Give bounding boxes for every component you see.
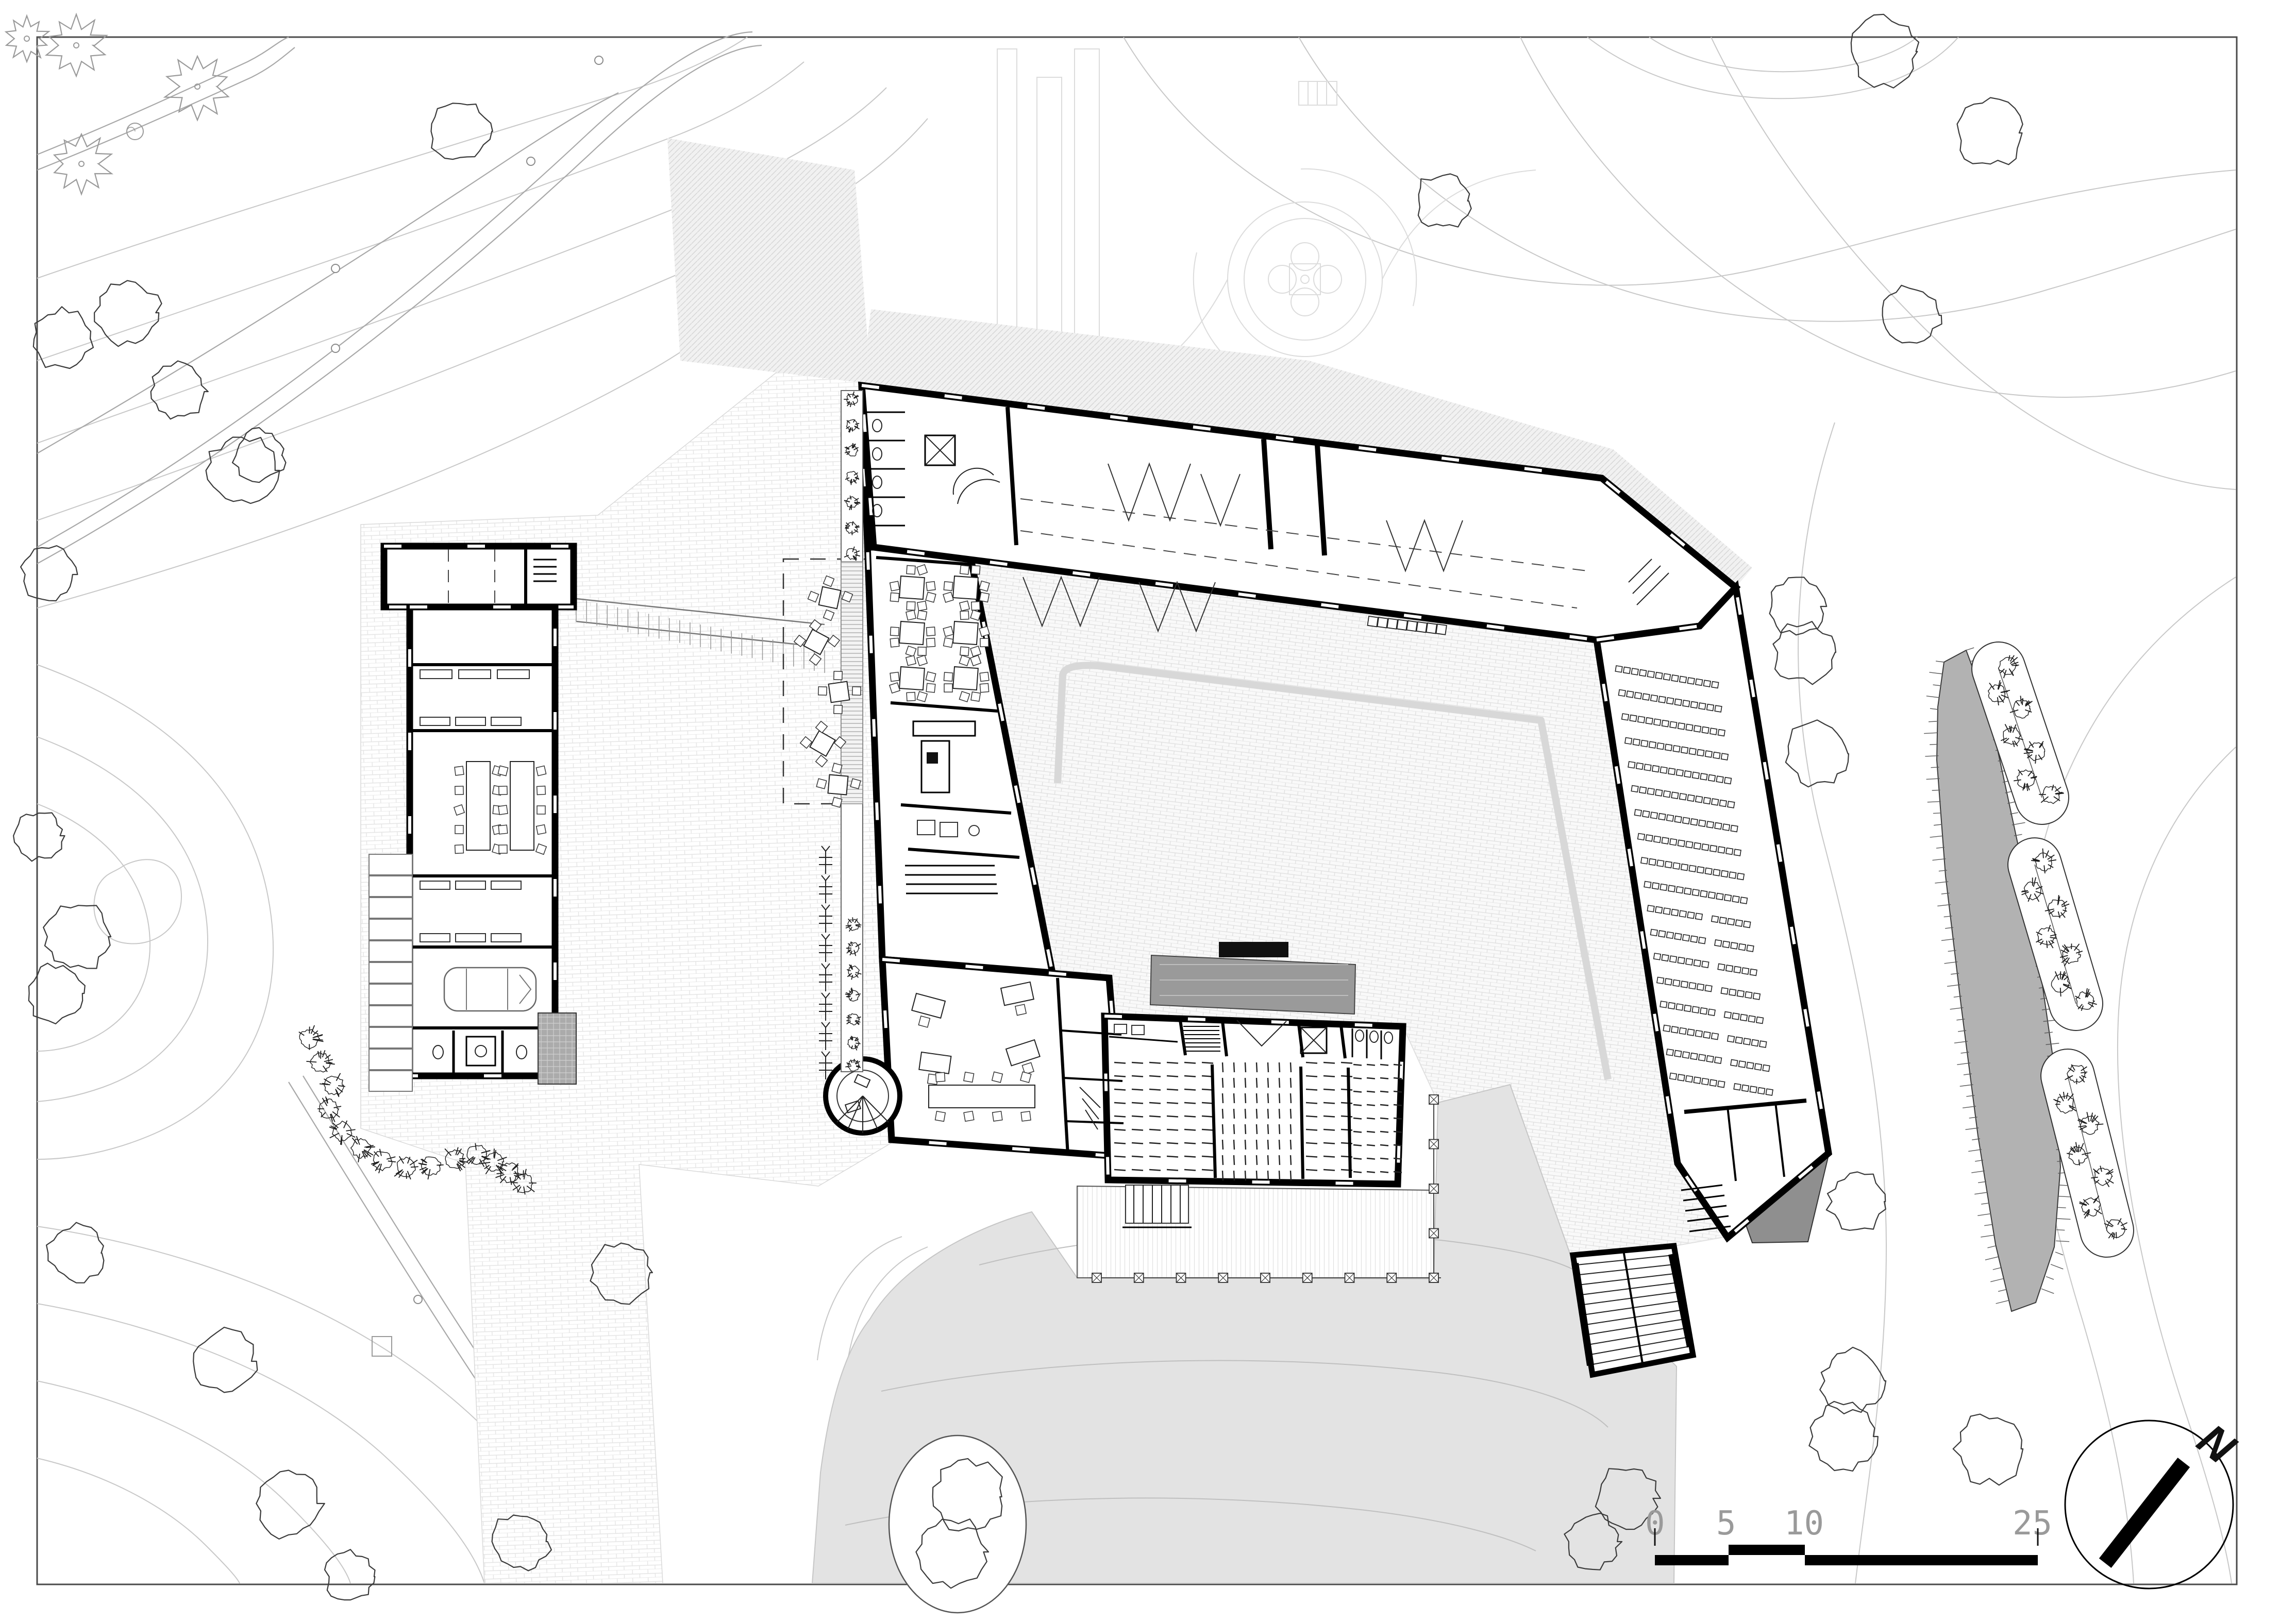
auditorium-seat: [1662, 720, 1669, 727]
dining-bench: [1167, 1062, 1178, 1063]
chair: [964, 1111, 974, 1122]
auditorium-seat: [1699, 703, 1706, 709]
stacked-chair: [1436, 624, 1446, 634]
chair: [537, 825, 546, 835]
dining-bench: [1202, 1129, 1213, 1130]
classroom-chair: [943, 592, 953, 602]
dining-bench: [1184, 1103, 1196, 1104]
auditorium-seat: [1687, 795, 1695, 801]
chair: [1021, 1111, 1031, 1121]
auditorium-seat: [1747, 1062, 1754, 1069]
auditorium-seat: [1663, 1025, 1670, 1032]
dining-bench: [1353, 1158, 1362, 1159]
outdoor-chair: [832, 763, 842, 773]
dining-bench: [1394, 1131, 1402, 1133]
auditorium-seat: [1683, 817, 1690, 824]
dining-bench: [1367, 1105, 1375, 1106]
auditorium-seat: [1750, 1086, 1757, 1093]
auditorium-seat: [1665, 978, 1672, 985]
auditorium-seat: [1670, 839, 1677, 846]
classroom-table: [953, 621, 978, 645]
classroom-chair: [891, 627, 899, 636]
dining-bench: [1367, 1158, 1375, 1159]
dining-bench: [1353, 1172, 1362, 1173]
auditorium-seat: [1753, 993, 1761, 1000]
stacked-chair: [1416, 622, 1427, 632]
dining-bench: [1184, 1076, 1196, 1077]
dining-bench: [1291, 1171, 1291, 1180]
dining-bench: [1234, 1171, 1234, 1180]
meeting-table: [510, 762, 534, 850]
auditorium-seat: [1716, 893, 1723, 900]
stacked-chair: [1387, 618, 1397, 629]
auditorium-seat: [1647, 788, 1654, 795]
dining-bench: [1256, 1078, 1257, 1088]
classroom-chair: [907, 692, 915, 701]
auditorium-seat: [1696, 1030, 1703, 1037]
terrace-step: [369, 941, 412, 961]
auditorium-seat: [1723, 824, 1730, 831]
site-plan-drawing: 0 5 10 25 N: [0, 0, 2296, 1622]
dining-bench: [1132, 1170, 1143, 1171]
auditorium-seat: [1696, 913, 1703, 920]
classroom-chair: [944, 672, 952, 681]
auditorium-seat: [1690, 819, 1698, 825]
dining-bench: [1184, 1116, 1196, 1117]
dining-bench: [1291, 1062, 1291, 1072]
dining-bench: [1132, 1062, 1143, 1063]
auditorium-seat: [1731, 825, 1738, 832]
bed-shrub-icon: [2095, 1124, 2103, 1124]
auditorium-seat: [1639, 670, 1647, 677]
auditorium-seat: [1732, 896, 1739, 903]
classroom-chair: [980, 683, 988, 692]
dining-bench: [1341, 1103, 1352, 1104]
dining-bench: [1367, 1091, 1375, 1092]
auditorium-seat: [1747, 945, 1754, 952]
auditorium-seat: [1670, 1073, 1677, 1080]
auditorium-seat: [1702, 961, 1709, 968]
dining-bench: [1202, 1170, 1213, 1171]
dining-bench: [1167, 1076, 1178, 1077]
auditorium-seat: [1649, 859, 1656, 866]
auditorium-seat: [1689, 983, 1696, 989]
auditorium-seat: [1697, 867, 1704, 873]
dining-bench: [1279, 1155, 1280, 1165]
dining-bench: [1114, 1170, 1126, 1171]
classroom-chair: [917, 601, 927, 611]
auditorium-seat: [1639, 787, 1647, 793]
auditorium-seat: [1694, 842, 1701, 849]
outdoor-chair: [834, 705, 843, 714]
deck-stair: [1122, 1185, 1192, 1227]
dining-bench: [1234, 1093, 1234, 1103]
dining-bench: [1132, 1129, 1143, 1130]
dining-bench: [1234, 1124, 1234, 1134]
auditorium-seat: [1655, 907, 1663, 914]
auditorium-seat: [1627, 691, 1634, 698]
auditorium-seat: [1643, 694, 1650, 700]
road-pole-icon: [331, 264, 340, 273]
dining-bench: [1323, 1089, 1335, 1090]
meeting-table: [929, 1085, 1035, 1108]
auditorium-seat: [1673, 746, 1680, 752]
auditorium-seat: [1718, 730, 1725, 736]
dining-bench: [1367, 1078, 1375, 1079]
dining-bench: [1132, 1116, 1143, 1117]
auditorium-seat: [1638, 834, 1645, 840]
dining-bench: [1268, 1171, 1268, 1180]
classroom-chair: [926, 582, 935, 591]
classroom-chair: [943, 627, 953, 637]
office-chair: [918, 1016, 930, 1027]
chair: [499, 786, 508, 795]
dining-bench: [1234, 1140, 1234, 1150]
auditorium-seat: [1660, 884, 1667, 891]
auditorium-seat: [1650, 930, 1657, 936]
auditorium-seat: [1674, 816, 1682, 823]
dining-bench: [1353, 1078, 1362, 1079]
chair: [455, 786, 464, 795]
auditorium-seat: [1713, 752, 1720, 759]
dining-bench: [1279, 1124, 1280, 1134]
dining-bench: [1279, 1171, 1280, 1180]
auditorium-seat: [1707, 821, 1714, 828]
dining-bench: [1149, 1062, 1161, 1063]
auditorium-seat: [1728, 1036, 1735, 1042]
slope-tick: [1931, 767, 1939, 768]
classroom-chair: [980, 638, 988, 647]
auditorium-seat: [1755, 1063, 1762, 1070]
dining-bench: [1202, 1062, 1213, 1063]
auditorium-seat: [1686, 1076, 1693, 1083]
dining-bench: [1268, 1124, 1268, 1134]
dining-bench: [1132, 1076, 1143, 1077]
road-pole-icon: [331, 344, 340, 352]
classroom-table: [953, 667, 978, 690]
terrace-step: [369, 854, 412, 875]
dining-bench: [1256, 1093, 1257, 1103]
outdoor-table: [829, 682, 850, 703]
dining-bench: [1380, 1105, 1388, 1106]
grand-stair: [1573, 1246, 1693, 1375]
auditorium-seat: [1681, 747, 1688, 753]
dining-bench: [1306, 1143, 1317, 1144]
dining-bench: [1367, 1065, 1375, 1066]
auditorium-seat: [1684, 888, 1691, 894]
dining-bench: [1268, 1078, 1268, 1088]
auditorium-seat: [1689, 748, 1696, 755]
auditorium-seat: [1689, 865, 1696, 872]
dining-bench: [1353, 1118, 1362, 1119]
auditorium-seat: [1742, 968, 1749, 974]
stair-icon: [1183, 1026, 1220, 1051]
dining-bench: [1279, 1109, 1280, 1119]
classroom-chair: [890, 638, 899, 647]
chair: [993, 1111, 1002, 1121]
auditorium-seat: [1633, 739, 1640, 746]
meeting-table: [466, 762, 490, 850]
classroom-chair: [979, 627, 990, 637]
dining-bench: [1323, 1129, 1335, 1130]
road-pole-icon: [595, 56, 603, 64]
classroom-chair: [890, 672, 899, 682]
auditorium-seat: [1694, 960, 1701, 967]
outdoor-table: [819, 587, 841, 609]
auditorium-seat: [1737, 873, 1745, 880]
auditorium-seat: [1726, 965, 1733, 972]
dining-bench: [1222, 1062, 1223, 1072]
auditorium-seat: [1705, 868, 1712, 874]
classroom-chair: [906, 655, 916, 665]
auditorium-seat: [1729, 989, 1736, 996]
dining-bench: [1380, 1065, 1388, 1066]
dining-bench: [1256, 1124, 1257, 1134]
auditorium-seat: [1654, 836, 1661, 843]
auditorium-seat: [1667, 815, 1674, 821]
auditorium-seat: [1734, 1084, 1741, 1090]
auditorium-seat: [1668, 1003, 1675, 1009]
auditorium-seat: [1641, 740, 1648, 747]
office-chair: [1015, 1004, 1026, 1015]
auditorium-seat: [1641, 857, 1648, 864]
dining-bench: [1256, 1171, 1257, 1180]
auditorium-seat: [1630, 715, 1637, 722]
auditorium-seat: [1631, 786, 1638, 792]
slope-tick: [2058, 1207, 2066, 1208]
auditorium-seat: [1758, 1088, 1765, 1094]
auditorium-seat: [1646, 718, 1653, 724]
auditorium-seat: [1648, 671, 1655, 678]
auditorium-seat: [1745, 992, 1752, 999]
auditorium-seat: [1684, 1005, 1691, 1012]
dining-bench: [1167, 1143, 1178, 1144]
dining-bench: [1394, 1065, 1402, 1066]
auditorium-seat: [1703, 1032, 1711, 1038]
auditorium-seat: [1705, 985, 1712, 992]
dining-bench: [1353, 1091, 1362, 1092]
auditorium-seat: [1719, 917, 1727, 924]
auditorium-seat: [1729, 872, 1736, 878]
auditorium-seat: [1739, 1061, 1746, 1068]
office-desk: [919, 1052, 951, 1074]
dining-bench: [1306, 1129, 1317, 1130]
dining-bench: [1323, 1103, 1335, 1104]
dining-bench: [1291, 1078, 1291, 1088]
classroom-chair: [907, 602, 915, 611]
dining-bench: [1306, 1170, 1317, 1171]
hedge-shrub-icon: [342, 1135, 342, 1145]
classroom-chair: [926, 683, 935, 692]
auditorium-seat: [1715, 1057, 1722, 1063]
auditorium-seat: [1710, 846, 1717, 852]
auditorium-seat: [1658, 814, 1666, 820]
auditorium-seat: [1681, 864, 1688, 871]
dining-bench: [1245, 1124, 1246, 1134]
dining-bench: [1341, 1062, 1352, 1063]
dining-bench: [1268, 1062, 1268, 1072]
auditorium-seat: [1683, 935, 1690, 941]
hedge-shrub-icon: [494, 1148, 494, 1157]
auditorium-seat: [1732, 1013, 1739, 1020]
auditorium-seat: [1737, 990, 1745, 997]
auditorium-seat: [1671, 1026, 1679, 1033]
auditorium-seat: [1658, 696, 1666, 703]
auditorium-seat: [1759, 1041, 1767, 1047]
auditorium-seat: [1696, 796, 1703, 803]
auditorium-seat: [1700, 773, 1707, 780]
dining-bench: [1306, 1076, 1317, 1077]
auditorium-seat: [1662, 837, 1669, 844]
outdoor-table: [828, 774, 848, 795]
chair: [498, 805, 508, 815]
dining-bench: [1245, 1140, 1246, 1150]
bed-shrub-icon: [2012, 665, 2019, 666]
dining-bench: [1114, 1156, 1126, 1157]
dining-bench: [1279, 1140, 1280, 1150]
auditorium-seat: [1634, 809, 1641, 816]
auditorium-seat: [1700, 890, 1707, 897]
auditorium-seat: [1708, 775, 1716, 782]
auditorium-seat: [1715, 823, 1722, 830]
auditorium-seat: [1681, 981, 1688, 988]
auditorium-seat: [1631, 668, 1638, 675]
dining-bench: [1167, 1129, 1178, 1130]
auditorium-seat: [1751, 1040, 1758, 1046]
chair: [935, 1072, 945, 1082]
auditorium-seat: [1707, 704, 1714, 711]
auditorium-seat: [1686, 958, 1693, 965]
dining-bench: [1394, 1078, 1402, 1079]
dining-bench: [1268, 1140, 1268, 1150]
dining-bench: [1268, 1093, 1268, 1103]
auditorium-seat: [1680, 676, 1687, 683]
auditorium-seat: [1666, 1049, 1673, 1056]
auditorium-seat: [1756, 1017, 1764, 1024]
dining-bench: [1234, 1078, 1234, 1088]
auditorium-seat: [1710, 728, 1717, 735]
auditorium-seat: [1692, 1006, 1699, 1013]
scale-label-25: 25: [2013, 1505, 2052, 1543]
terrace-step: [369, 876, 412, 897]
dining-bench: [1394, 1172, 1402, 1173]
dining-bench: [1291, 1109, 1291, 1119]
classroom-chair: [917, 611, 927, 620]
dining-bench: [1306, 1062, 1317, 1063]
dining-bench: [1245, 1155, 1246, 1165]
classroom-chair: [979, 581, 990, 592]
auditorium-seat: [1654, 953, 1661, 960]
hedge-shrub-icon: [497, 1173, 504, 1174]
auditorium-seat: [1700, 1008, 1707, 1015]
chair: [935, 1111, 946, 1122]
dining-bench: [1323, 1170, 1335, 1171]
dining-bench: [1184, 1143, 1196, 1144]
outdoor-chair: [832, 797, 842, 807]
dining-bench: [1202, 1156, 1213, 1157]
planter-shrub-icon: [856, 1066, 860, 1067]
classroom-chair: [944, 684, 952, 692]
dining-bench: [1234, 1062, 1234, 1072]
site-plan-page: 0 5 10 25 N: [0, 0, 2296, 1622]
auditorium-seat: [1702, 727, 1709, 734]
auditorium-seat: [1731, 1059, 1738, 1066]
dining-bench: [1222, 1155, 1223, 1165]
auditorium-seat: [1712, 799, 1719, 805]
dining-bench: [1114, 1116, 1126, 1117]
auditorium-seat: [1702, 844, 1709, 851]
dining-bench: [1222, 1078, 1223, 1088]
terraced-steps: [369, 854, 412, 1091]
dining-bench: [1367, 1131, 1375, 1133]
auditorium-seat: [1691, 702, 1698, 708]
road-pole-icon: [414, 1295, 422, 1304]
dining-bench: [1268, 1109, 1268, 1119]
dining-bench: [1167, 1170, 1178, 1171]
dining-bench: [1202, 1116, 1213, 1117]
dining-bench: [1394, 1145, 1402, 1146]
classroom-chair: [926, 672, 935, 682]
terrace-step: [369, 898, 412, 918]
auditorium-seat: [1644, 764, 1651, 771]
auditorium-seat: [1724, 1011, 1732, 1018]
auditorium-seat: [1680, 793, 1687, 800]
auditorium-seat: [1766, 1089, 1773, 1095]
dining-bench: [1268, 1155, 1268, 1165]
chair: [536, 766, 546, 775]
auditorium-seat: [1615, 666, 1622, 672]
dining-bench: [1291, 1124, 1291, 1134]
auditorium-seat: [1636, 763, 1644, 770]
auditorium-seat: [1726, 848, 1733, 855]
dining-bench: [1114, 1089, 1126, 1090]
dining-bench: [1306, 1103, 1317, 1104]
auditorium-seat: [1734, 967, 1741, 973]
auditorium-seat: [1699, 1054, 1706, 1061]
auditorium-seat: [1699, 937, 1706, 944]
auditorium-seat: [1668, 768, 1675, 775]
dining-bench: [1341, 1089, 1352, 1090]
auditorium-seat: [1683, 1052, 1690, 1058]
dining-bench: [1323, 1156, 1335, 1157]
scale-label-10: 10: [1784, 1505, 1824, 1543]
auditorium-seat: [1687, 1029, 1695, 1036]
dining-bench: [1306, 1116, 1317, 1117]
auditorium-seat: [1678, 723, 1685, 730]
dining-bench: [1149, 1129, 1161, 1130]
slope-tick: [2056, 1230, 2065, 1230]
classroom-table: [953, 576, 978, 599]
auditorium-seat: [1705, 751, 1713, 757]
auditorium-seat: [1647, 905, 1654, 912]
auditorium-seat: [1643, 811, 1650, 818]
dining-bench: [1234, 1109, 1234, 1119]
dining-bench: [1394, 1158, 1402, 1159]
dining-bench: [1167, 1089, 1178, 1090]
entrance-canopy-roof: [1150, 955, 1355, 1014]
auditorium-seat: [1763, 1065, 1770, 1072]
auditorium-seat: [1735, 1037, 1742, 1044]
auditorium-seat: [1706, 1056, 1714, 1062]
auditorium-seat: [1678, 840, 1685, 847]
classroom-chair: [980, 593, 990, 602]
dining-bench: [1149, 1170, 1161, 1171]
auditorium-seat: [1708, 1009, 1715, 1016]
auditorium-seat: [1703, 680, 1711, 687]
auditorium-seat: [1638, 716, 1645, 723]
auditorium-seat: [1676, 1004, 1683, 1010]
dining-bench: [1279, 1062, 1280, 1072]
